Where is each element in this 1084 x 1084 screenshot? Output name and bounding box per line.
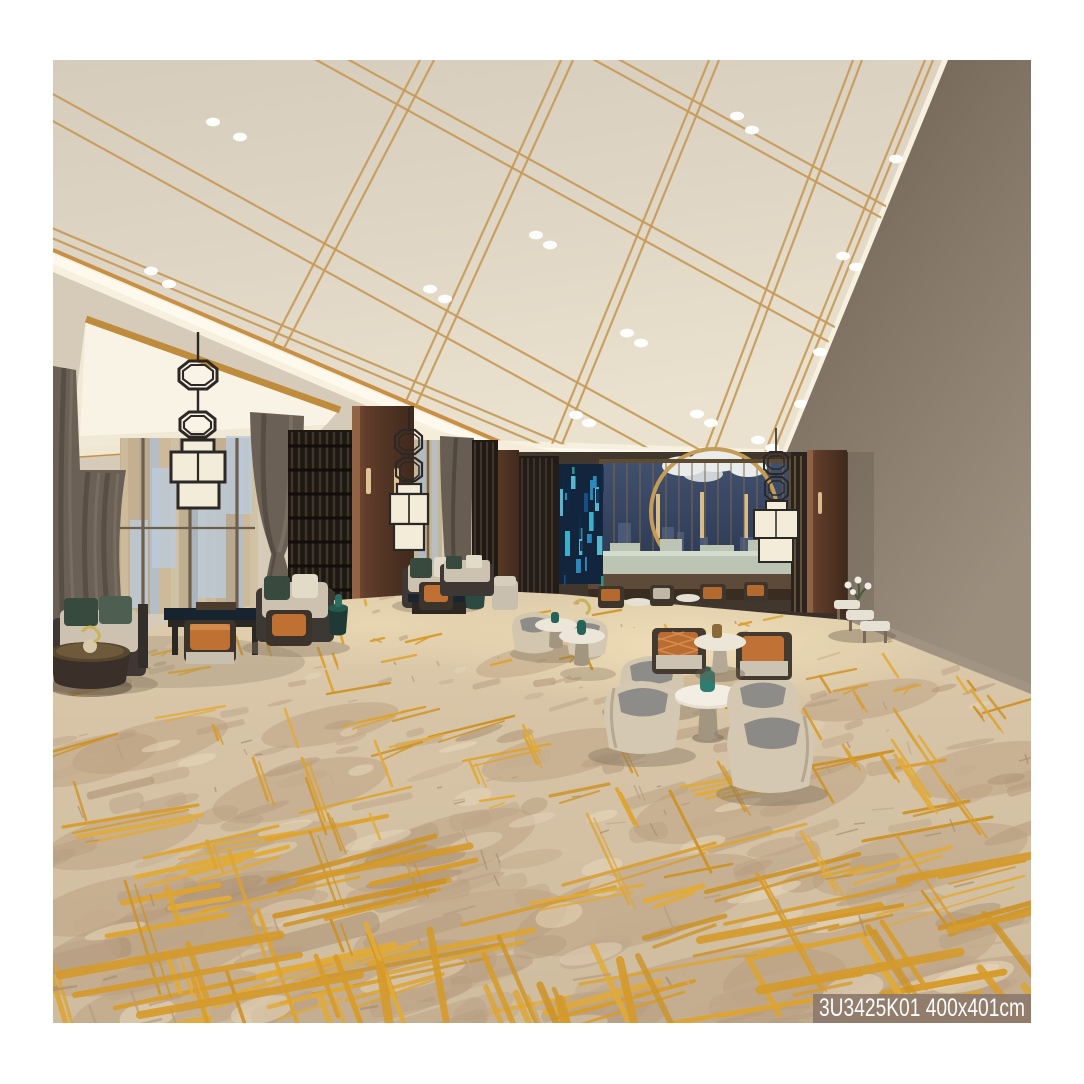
svg-text:3U3425K01 400x401cm: 3U3425K01 400x401cm: [819, 994, 1025, 1022]
